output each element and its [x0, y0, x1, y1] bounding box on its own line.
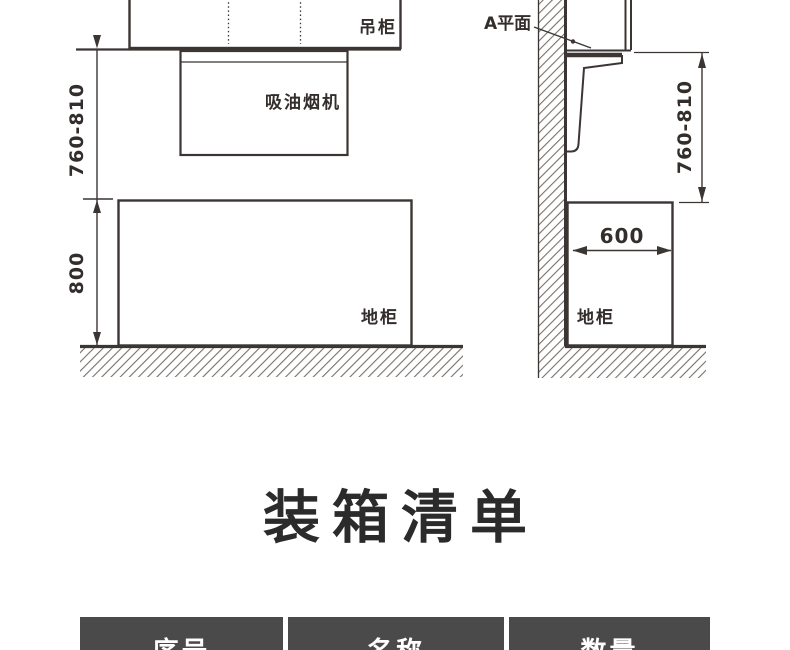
side-base-cabinet-label: 地柜 — [577, 307, 615, 328]
arrow-up-icon — [93, 200, 101, 213]
table-header-quantity-label: 数量 — [580, 637, 638, 650]
front-base-cabinet-label: 地柜 — [361, 307, 399, 328]
arrow-up-icon — [698, 54, 706, 69]
front-hood-label: 吸油烟机 — [265, 92, 341, 113]
plane-leader-dot — [571, 39, 575, 43]
side-ground-hatch — [565, 348, 706, 378]
side-view — [534, 0, 709, 378]
table-header-name-label: 名称 — [367, 637, 425, 650]
front-ground-hatch — [80, 348, 463, 377]
table-header-index-label: 序号 — [152, 637, 210, 650]
manual-page: 吊柜 吸油烟机 地柜 760-810 800 — [0, 0, 790, 650]
arrow-down-icon — [698, 187, 706, 202]
arrow-down-icon — [93, 332, 101, 345]
side-base-depth-dimension: 600 — [600, 224, 645, 248]
side-hood-height-dimension: 760-810 — [674, 80, 696, 174]
front-wall-cabinet-label: 吊柜 — [359, 17, 397, 38]
table-header-index: 序号 — [80, 617, 283, 650]
packing-list-table-header: 序号 名称 数量 — [80, 617, 710, 650]
wall-hatch — [538, 0, 565, 378]
arrow-down-icon — [93, 35, 101, 49]
side-hood-profile — [566, 55, 622, 152]
arrow-right-icon — [657, 246, 672, 255]
table-header-quantity: 数量 — [509, 617, 710, 650]
packing-list-title: 装箱清单 — [0, 484, 790, 556]
front-view — [76, 0, 463, 377]
installation-diagram: 吊柜 吸油烟机 地柜 760-810 800 — [0, 0, 790, 462]
front-hood-height-dimension: 760-810 — [66, 83, 88, 177]
arrow-left-icon — [573, 246, 588, 255]
plane-a-label: A平面 — [484, 14, 531, 34]
front-base-height-dimension: 800 — [66, 252, 88, 295]
table-header-name: 名称 — [288, 617, 504, 650]
